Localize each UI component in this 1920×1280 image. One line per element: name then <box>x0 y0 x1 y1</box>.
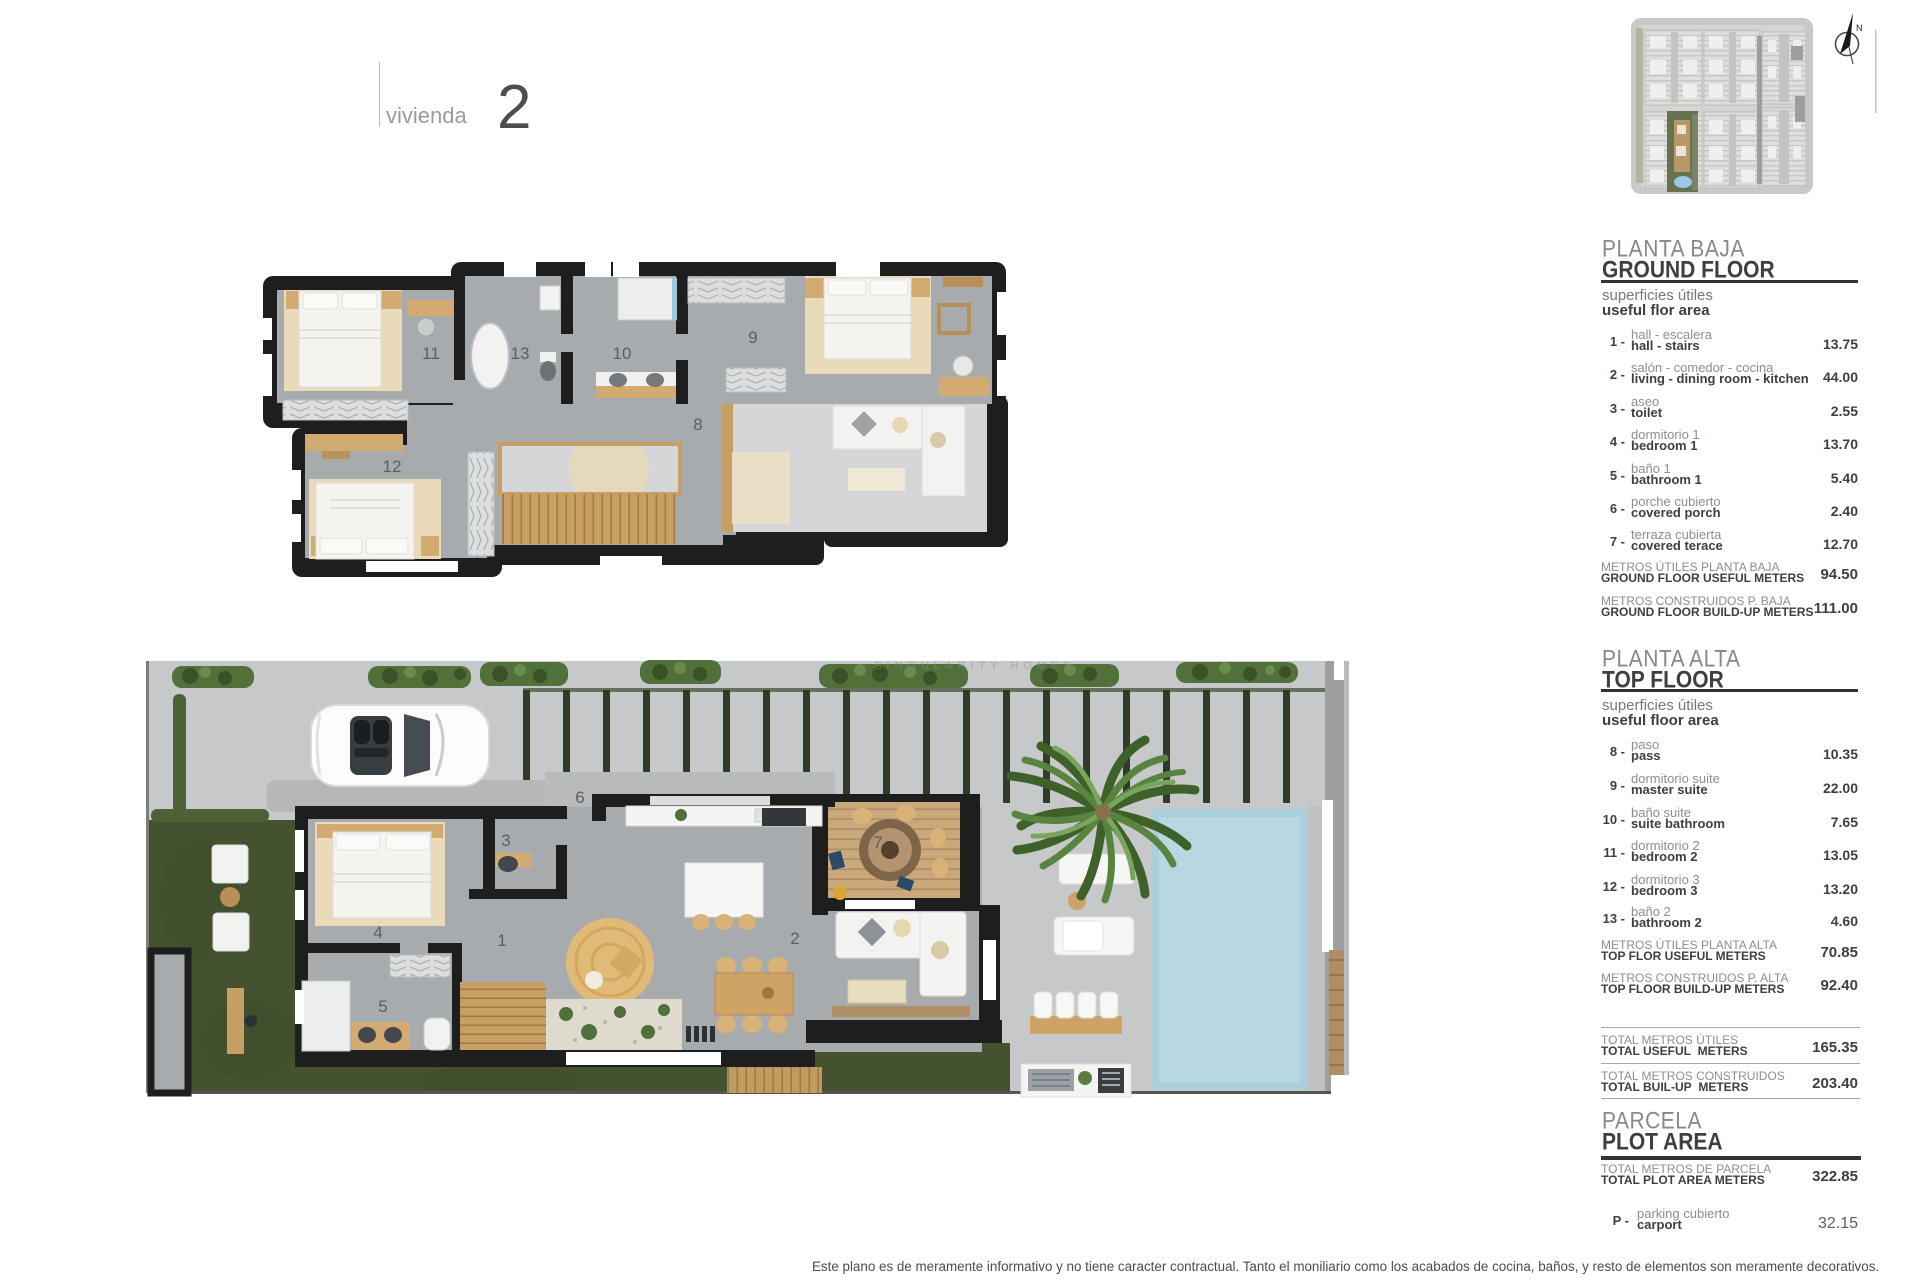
svg-text:9: 9 <box>748 328 757 347</box>
svg-text:3: 3 <box>501 831 510 850</box>
svg-text:10: 10 <box>613 344 632 363</box>
svg-text:5: 5 <box>378 997 387 1016</box>
svg-text:N: N <box>1856 23 1863 33</box>
svg-text:12: 12 <box>383 457 402 476</box>
svg-text:4: 4 <box>373 923 382 942</box>
svg-text:6: 6 <box>575 788 584 807</box>
svg-text:7: 7 <box>873 833 882 852</box>
svg-text:SINGULARITY HOMES: SINGULARITY HOMES <box>874 660 1076 672</box>
svg-text:2: 2 <box>790 929 799 948</box>
svg-text:11: 11 <box>422 344 440 363</box>
svg-text:13: 13 <box>511 344 530 363</box>
svg-text:1: 1 <box>497 931 506 950</box>
svg-text:8: 8 <box>693 415 702 434</box>
